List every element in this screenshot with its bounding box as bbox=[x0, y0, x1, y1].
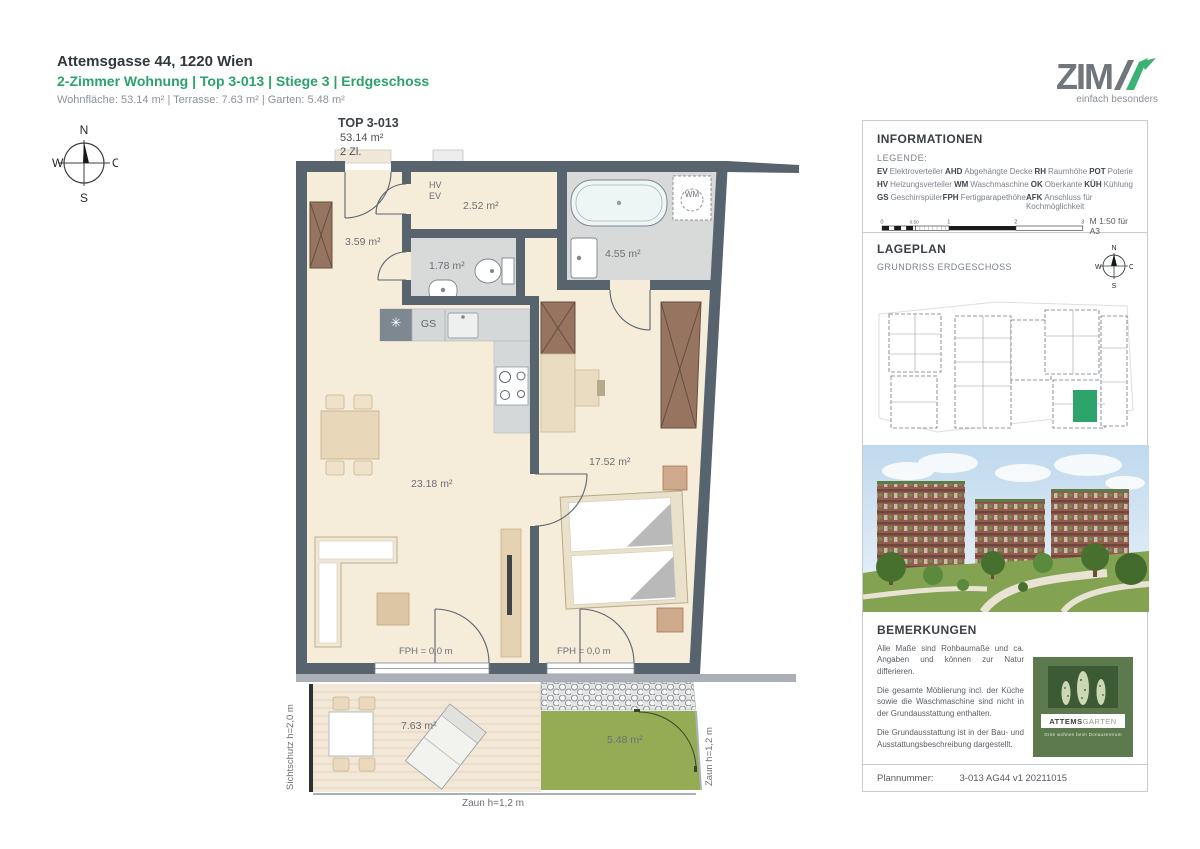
bemerkungen-title: BEMERKUNGEN bbox=[877, 623, 1133, 637]
bemerkungen-paragraph: Die gesamte Möblierung incl. der Küche s… bbox=[877, 685, 1024, 719]
section-bemerkungen: BEMERKUNGEN Alle Maße sind Rohbaumaße un… bbox=[863, 612, 1147, 764]
label-bedroom-area: 17.52 m² bbox=[589, 456, 630, 468]
legend-item: RHRaumhöhe bbox=[1034, 167, 1087, 176]
nightstand bbox=[663, 466, 687, 490]
plan-sheet: Attemsgasse 44, 1220 Wien 2-Zimmer Wohnu… bbox=[0, 0, 1200, 849]
compass-n: N bbox=[80, 123, 89, 137]
bemerkungen-paragraph: Die Grundausstattung ist in der Bau- und… bbox=[877, 727, 1024, 750]
legend-item: HVHeizungsverteiler bbox=[877, 180, 952, 189]
label-fence-bottom: Zaun h=1,2 m bbox=[418, 798, 568, 809]
fence-line-bottom bbox=[313, 793, 696, 795]
compass-rose-small: N S W O bbox=[1095, 242, 1133, 290]
attemsgarten-tagline: Grün wohnen beim Donauzentrum bbox=[1044, 732, 1122, 737]
label-dishwasher: GS bbox=[412, 318, 445, 330]
privacy-screen-line bbox=[309, 684, 313, 792]
zima-a-glyph bbox=[1112, 56, 1158, 92]
bedroom-wardrobe-right bbox=[661, 302, 701, 428]
section-lageplan: LAGEPLAN GRUNDRISS ERDGESCHOSS N S W O bbox=[863, 233, 1147, 445]
svg-text:S: S bbox=[1112, 283, 1117, 290]
plannumber-label: Plannummer: bbox=[877, 773, 934, 784]
zima-logo: ZIM einfach besonders bbox=[1003, 56, 1158, 105]
info-panel: INFORMATIONEN LEGENDE: EVElektroverteile… bbox=[862, 120, 1148, 792]
label-ev: EV bbox=[429, 191, 441, 201]
label-fence-right: Zaun h=1,2 m bbox=[704, 727, 715, 786]
toilet bbox=[475, 258, 514, 284]
label-garden-area: 5.48 m² bbox=[607, 734, 643, 746]
bathtub bbox=[571, 180, 667, 226]
address-title: Attemsgasse 44, 1220 Wien bbox=[57, 53, 429, 70]
apartment-subtitle: 2-Zimmer Wohnung | Top 3-013 | Stiege 3 … bbox=[57, 73, 429, 89]
plannumber-value: 3-013 AG44 v1 20211015 bbox=[960, 773, 1068, 784]
header: Attemsgasse 44, 1220 Wien 2-Zimmer Wohnu… bbox=[57, 53, 429, 106]
section-rendering bbox=[863, 445, 1147, 612]
hall-wardrobe bbox=[310, 202, 332, 268]
attemsgarten-trees-icon bbox=[1048, 666, 1118, 708]
svg-text:O: O bbox=[1129, 264, 1133, 271]
svg-text:0: 0 bbox=[880, 219, 883, 225]
legend-item: FPHFertigparapethöhe bbox=[943, 193, 1026, 211]
legend-item: KÜHKühlung bbox=[1084, 180, 1133, 189]
legend-row: GSGeschirrspüler FPHFertigparapethöhe AF… bbox=[877, 193, 1133, 211]
legend-item: GSGeschirrspüler bbox=[877, 193, 943, 211]
terrace bbox=[313, 684, 541, 792]
section-plannumber: Plannummer: 3-013 AG44 v1 20211015 bbox=[863, 764, 1147, 791]
plan-total-area: 53.14 m² bbox=[340, 132, 383, 144]
svg-text:0.50: 0.50 bbox=[910, 219, 920, 224]
floorplan: TOP 3-013 53.14 m² 2 Zl. HV EV 2.52 m² 3… bbox=[283, 112, 803, 812]
zima-wordmark: ZIM bbox=[1056, 62, 1112, 92]
label-privacy-screen: Sichtschutz h=2,0 m bbox=[285, 704, 296, 790]
compass-rose: N S W O bbox=[50, 120, 118, 206]
garden bbox=[541, 709, 701, 790]
svg-text:W: W bbox=[1095, 264, 1102, 271]
label-storage-area: 2.52 m² bbox=[463, 200, 499, 212]
attemsgarten-logo: ATTEMSGARTEN Grün wohnen beim Donauzentr… bbox=[1033, 657, 1133, 757]
legend-item: EVElektroverteiler bbox=[877, 167, 943, 176]
label-terrace-area: 7.63 m² bbox=[401, 720, 437, 732]
label-wc-area: 1.78 m² bbox=[429, 260, 465, 272]
section-informationen: INFORMATIONEN LEGENDE: EVElektroverteile… bbox=[863, 121, 1147, 233]
double-bed bbox=[560, 491, 688, 609]
legend-item: AHDAbgehängte Decke bbox=[945, 167, 1032, 176]
svg-text:2: 2 bbox=[1014, 219, 1017, 225]
cooktop-connection-icon: ✳ bbox=[380, 315, 412, 331]
bath-sink bbox=[571, 238, 597, 278]
area-summary: Wohnfläche: 53.14 m² | Terrasse: 7.63 m²… bbox=[57, 94, 429, 106]
nightstand bbox=[657, 608, 683, 632]
label-bath-area: 4.55 m² bbox=[605, 248, 641, 260]
legend-row: EVElektroverteiler AHDAbgehängte Decke R… bbox=[877, 167, 1133, 176]
compass-o: O bbox=[112, 156, 118, 170]
legend-item: POTPoterie bbox=[1089, 167, 1133, 176]
label-fph-right: FPH = 0,0 m bbox=[557, 646, 611, 657]
lageplan-subtitle: GRUNDRISS ERDGESCHOSS bbox=[877, 262, 1012, 272]
svg-text:3: 3 bbox=[1081, 219, 1084, 225]
floorplan-drawing bbox=[283, 112, 803, 812]
label-hall-area: 3.59 m² bbox=[345, 236, 381, 248]
legend-item: OKOberkante bbox=[1031, 180, 1082, 189]
gravel-strip bbox=[541, 682, 696, 710]
bemerkungen-paragraph: Alle Maße sind Rohbaumaße und ca. Angabe… bbox=[877, 643, 1024, 677]
label-hv: HV bbox=[429, 180, 442, 190]
building-rendering bbox=[863, 445, 1149, 612]
zima-tagline: einfach besonders bbox=[1003, 94, 1158, 105]
lageplan-title: LAGEPLAN bbox=[877, 242, 1012, 256]
tv-cabinet bbox=[501, 529, 521, 657]
svg-text:N: N bbox=[1111, 245, 1116, 252]
legend-item: AFKAnschluss für Kochmöglichkeit bbox=[1026, 193, 1133, 211]
plan-room-count: 2 Zl. bbox=[340, 146, 361, 158]
legend-item: WMWaschmaschine bbox=[954, 180, 1029, 189]
informationen-title: INFORMATIONEN bbox=[877, 132, 1133, 146]
attemsgarten-wordmark: ATTEMSGARTEN bbox=[1041, 714, 1125, 728]
svg-text:1: 1 bbox=[947, 219, 950, 225]
legend-row: HVHeizungsverteiler WMWaschmaschine OKOb… bbox=[877, 180, 1133, 189]
unit-highlight bbox=[1073, 390, 1097, 422]
label-washing-machine: WM bbox=[681, 190, 703, 199]
compass-w: W bbox=[52, 156, 64, 170]
siteplan-map bbox=[877, 292, 1135, 440]
compass-s: S bbox=[80, 191, 88, 205]
coffee-table bbox=[377, 593, 409, 625]
label-fph-left: FPH = 0,0 m bbox=[399, 646, 453, 657]
plan-title: TOP 3-013 bbox=[338, 116, 399, 130]
legende-label: LEGENDE: bbox=[877, 153, 1133, 163]
label-living-area: 23.18 m² bbox=[411, 478, 452, 490]
